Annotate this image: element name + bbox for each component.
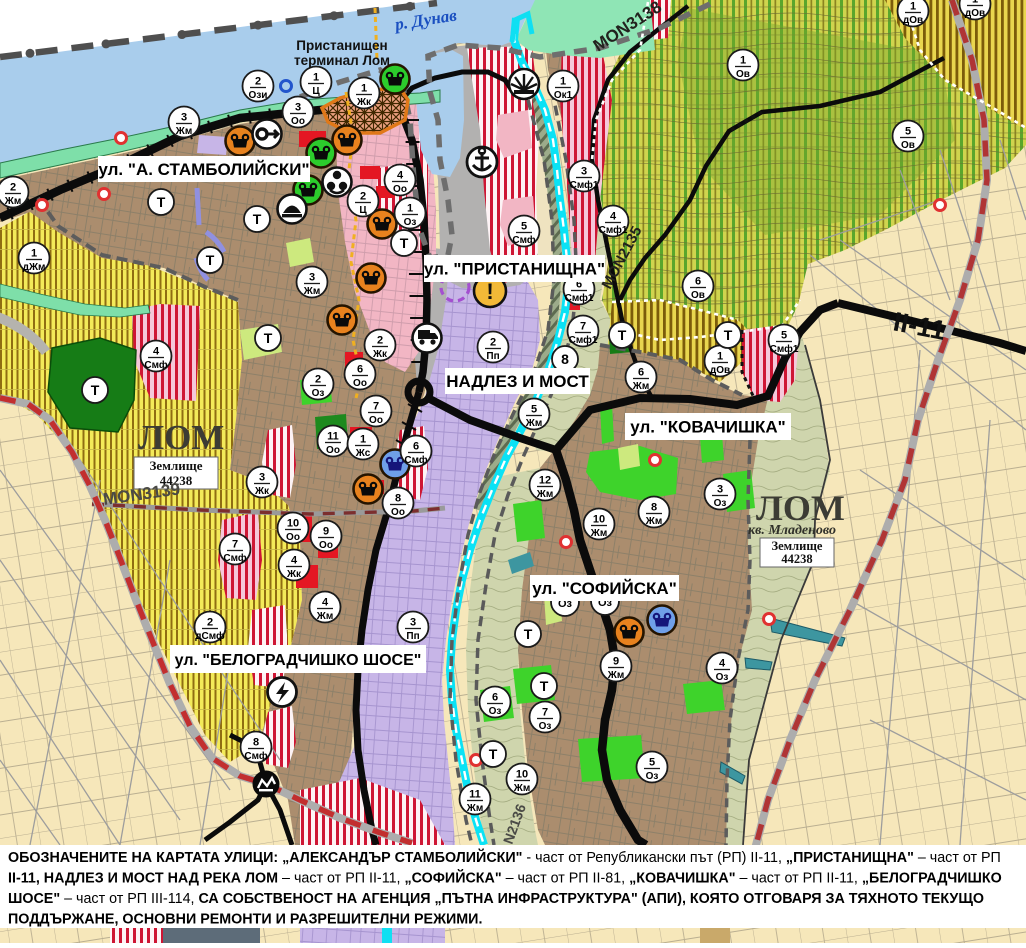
svg-text:11: 11	[469, 789, 481, 801]
svg-text:8: 8	[651, 502, 657, 514]
svg-text:Жм: Жм	[466, 803, 483, 814]
svg-text:2: 2	[490, 337, 496, 349]
svg-text:1: 1	[407, 203, 413, 215]
svg-text:ШОСЕ" – част от РП III-114, СА: ШОСЕ" – част от РП III-114, СА СОБСТВЕНО…	[8, 891, 984, 907]
svg-text:1: 1	[560, 76, 566, 88]
svg-text:Смф1: Смф1	[570, 179, 599, 191]
svg-text:Т: Т	[264, 330, 273, 346]
svg-text:Оз: Оз	[404, 217, 417, 228]
svg-text:Т: Т	[618, 327, 627, 343]
svg-text:Т: Т	[253, 211, 262, 227]
svg-text:II-11, НАДЛЕЗ И МОСТ НАД РЕКА: II-11, НАДЛЕЗ И МОСТ НАД РЕКА ЛОМ – част…	[8, 869, 1002, 887]
svg-text:6: 6	[357, 364, 363, 376]
svg-text:4: 4	[610, 211, 617, 223]
svg-text:ул. "БЕЛОГРАДЧИШКО ШОСЕ": ул. "БЕЛОГРАДЧИШКО ШОСЕ"	[175, 652, 422, 669]
svg-text:Ов: Ов	[736, 69, 750, 80]
svg-text:4: 4	[719, 658, 726, 670]
svg-text:1: 1	[910, 1, 916, 13]
svg-text:Жм: Жм	[316, 611, 333, 622]
svg-text:Землище: Землище	[149, 458, 202, 473]
svg-text:10: 10	[516, 769, 528, 781]
svg-text:1: 1	[740, 55, 746, 67]
svg-text:Оо: Оо	[286, 532, 300, 543]
svg-text:ул. "ПРИСТАНИЩНА": ул. "ПРИСТАНИЩНА"	[424, 260, 605, 279]
svg-text:Жм: Жм	[525, 418, 542, 429]
svg-text:9: 9	[323, 526, 329, 538]
svg-text:Ок1: Ок1	[554, 90, 573, 101]
svg-text:3: 3	[295, 102, 301, 114]
svg-text:Т: Т	[91, 382, 100, 398]
svg-text:7: 7	[580, 321, 586, 333]
svg-text:1: 1	[360, 434, 366, 446]
svg-text:3: 3	[309, 272, 315, 284]
svg-text:дОв: дОв	[965, 8, 985, 19]
svg-text:6: 6	[492, 692, 498, 704]
svg-text:Землище: Землище	[772, 539, 823, 553]
svg-text:2: 2	[255, 76, 261, 88]
svg-text:4: 4	[291, 555, 298, 567]
svg-text:дЖм: дЖм	[23, 262, 46, 273]
svg-text:ПОДДЪРЖАНЕ, ОСНОВНИ РЕМОНТИ И: ПОДДЪРЖАНЕ, ОСНОВНИ РЕМОНТИ И РАЗРЕШИТЕЛ…	[8, 912, 482, 928]
svg-text:Жм: Жм	[632, 381, 649, 392]
svg-text:Т: Т	[489, 746, 498, 762]
svg-text:1: 1	[31, 248, 37, 260]
svg-text:Пп: Пп	[406, 631, 419, 642]
svg-text:Т: Т	[540, 678, 549, 694]
svg-text:Ов: Ов	[901, 140, 915, 151]
svg-text:2: 2	[207, 617, 213, 629]
svg-text:2: 2	[10, 182, 16, 194]
svg-text:Смф: Смф	[223, 552, 246, 564]
svg-text:Оз: Оз	[716, 672, 729, 683]
svg-text:3: 3	[410, 617, 416, 629]
svg-text:2: 2	[377, 335, 383, 347]
svg-text:12: 12	[539, 475, 551, 487]
svg-text:10: 10	[593, 514, 605, 526]
svg-text:Ози: Ози	[249, 90, 268, 101]
svg-text:6: 6	[638, 367, 644, 379]
svg-text:9: 9	[613, 656, 619, 668]
svg-text:дСмф: дСмф	[195, 630, 225, 642]
svg-text:ул. "СОФИЙСКА": ул. "СОФИЙСКА"	[532, 579, 677, 598]
svg-text:Смф: Смф	[144, 359, 167, 371]
svg-text:5: 5	[531, 404, 537, 416]
svg-text:1: 1	[972, 0, 978, 6]
svg-text:4: 4	[153, 346, 160, 358]
svg-text:7: 7	[232, 539, 238, 551]
svg-text:кв. Младеново: кв. Младеново	[748, 523, 836, 538]
svg-text:дОв: дОв	[903, 15, 923, 26]
svg-text:6: 6	[695, 276, 701, 288]
svg-text:Жм: Жм	[590, 528, 607, 539]
svg-text:ул. "А. СТАМБОЛИЙСКИ": ул. "А. СТАМБОЛИЙСКИ"	[98, 160, 309, 179]
svg-text:Смф: Смф	[404, 454, 427, 466]
svg-text:44238: 44238	[781, 552, 812, 566]
svg-text:7: 7	[542, 707, 548, 719]
svg-text:Жм: Жм	[175, 126, 192, 137]
svg-text:Т: Т	[524, 626, 533, 642]
svg-text:1: 1	[717, 351, 723, 363]
svg-text:8: 8	[561, 351, 569, 367]
svg-text:Жк: Жк	[254, 486, 270, 497]
svg-text:Т: Т	[206, 252, 215, 268]
svg-text:Смф1: Смф1	[599, 224, 628, 236]
svg-text:НАДЛЕЗ И МОСТ: НАДЛЕЗ И МОСТ	[446, 372, 589, 391]
svg-text:дОв: дОв	[710, 365, 730, 376]
svg-text:5: 5	[521, 221, 527, 233]
svg-text:!: !	[486, 279, 493, 304]
svg-text:1: 1	[313, 72, 319, 84]
svg-text:Жм: Жм	[513, 783, 530, 794]
svg-text:ул. "КОВАЧИШКА": ул. "КОВАЧИШКА"	[630, 418, 786, 437]
svg-text:11: 11	[327, 431, 339, 443]
svg-text:5: 5	[649, 757, 655, 769]
svg-text:Пристанищен: Пристанищен	[296, 38, 387, 53]
svg-text:Оз: Оз	[539, 721, 552, 732]
svg-text:2: 2	[315, 374, 321, 386]
svg-text:Т: Т	[157, 194, 166, 210]
svg-text:Смф: Смф	[244, 750, 267, 762]
svg-text:Ц: Ц	[312, 86, 320, 97]
svg-text:8: 8	[253, 737, 259, 749]
svg-text:Оо: Оо	[369, 415, 383, 426]
svg-text:Оо: Оо	[393, 184, 407, 195]
svg-text:Смф1: Смф1	[770, 343, 799, 355]
svg-text:Оз: Оз	[714, 498, 727, 509]
svg-text:Жм: Жм	[607, 670, 624, 681]
svg-text:7: 7	[373, 401, 379, 413]
svg-text:Жм: Жм	[303, 286, 320, 297]
svg-text:Оз: Оз	[489, 706, 502, 717]
svg-text:Смф1: Смф1	[569, 334, 598, 346]
svg-text:Оо: Оо	[391, 507, 405, 518]
svg-text:Смф1: Смф1	[565, 292, 594, 304]
svg-text:1: 1	[361, 83, 367, 95]
svg-text:Жм: Жм	[4, 196, 21, 207]
svg-text:Жк: Жк	[286, 569, 302, 580]
svg-text:2: 2	[360, 191, 366, 203]
svg-text:6: 6	[413, 441, 419, 453]
svg-text:Оо: Оо	[353, 378, 367, 389]
svg-text:Ов: Ов	[691, 290, 705, 301]
svg-text:Т: Т	[724, 327, 733, 343]
svg-text:Ц: Ц	[359, 205, 367, 216]
svg-text:4: 4	[322, 597, 329, 609]
svg-text:Пп: Пп	[486, 351, 499, 362]
svg-text:Оз: Оз	[312, 388, 325, 399]
svg-text:Оо: Оо	[291, 116, 305, 127]
svg-text:5: 5	[905, 126, 911, 138]
svg-text:Жс: Жс	[355, 448, 371, 459]
svg-text:Жк: Жк	[372, 349, 388, 360]
svg-text:Жм: Жм	[536, 489, 553, 500]
svg-text:Т: Т	[400, 235, 409, 251]
svg-text:5: 5	[781, 330, 787, 342]
svg-text:3: 3	[581, 166, 587, 178]
svg-text:ОБОЗНАЧЕНИТЕ НА КАРТАТА УЛИЦИ:: ОБОЗНАЧЕНИТЕ НА КАРТАТА УЛИЦИ: „АЛЕКСАНД…	[8, 848, 1001, 866]
svg-text:Жк: Жк	[356, 97, 372, 108]
svg-text:3: 3	[717, 484, 723, 496]
svg-text:Жм: Жм	[645, 516, 662, 527]
svg-text:Смф: Смф	[512, 234, 535, 246]
svg-text:Оз: Оз	[646, 771, 659, 782]
svg-text:10: 10	[287, 518, 299, 530]
svg-text:терминал Лом: терминал Лом	[294, 53, 390, 68]
svg-text:3: 3	[181, 112, 187, 124]
svg-text:ЛОМ: ЛОМ	[756, 488, 845, 528]
svg-text:3: 3	[259, 472, 265, 484]
svg-text:4: 4	[397, 170, 404, 182]
svg-text:8: 8	[395, 493, 401, 505]
svg-text:ЛОМ: ЛОМ	[138, 418, 224, 457]
svg-text:Оо: Оо	[319, 540, 333, 551]
svg-text:Оо: Оо	[326, 445, 340, 456]
